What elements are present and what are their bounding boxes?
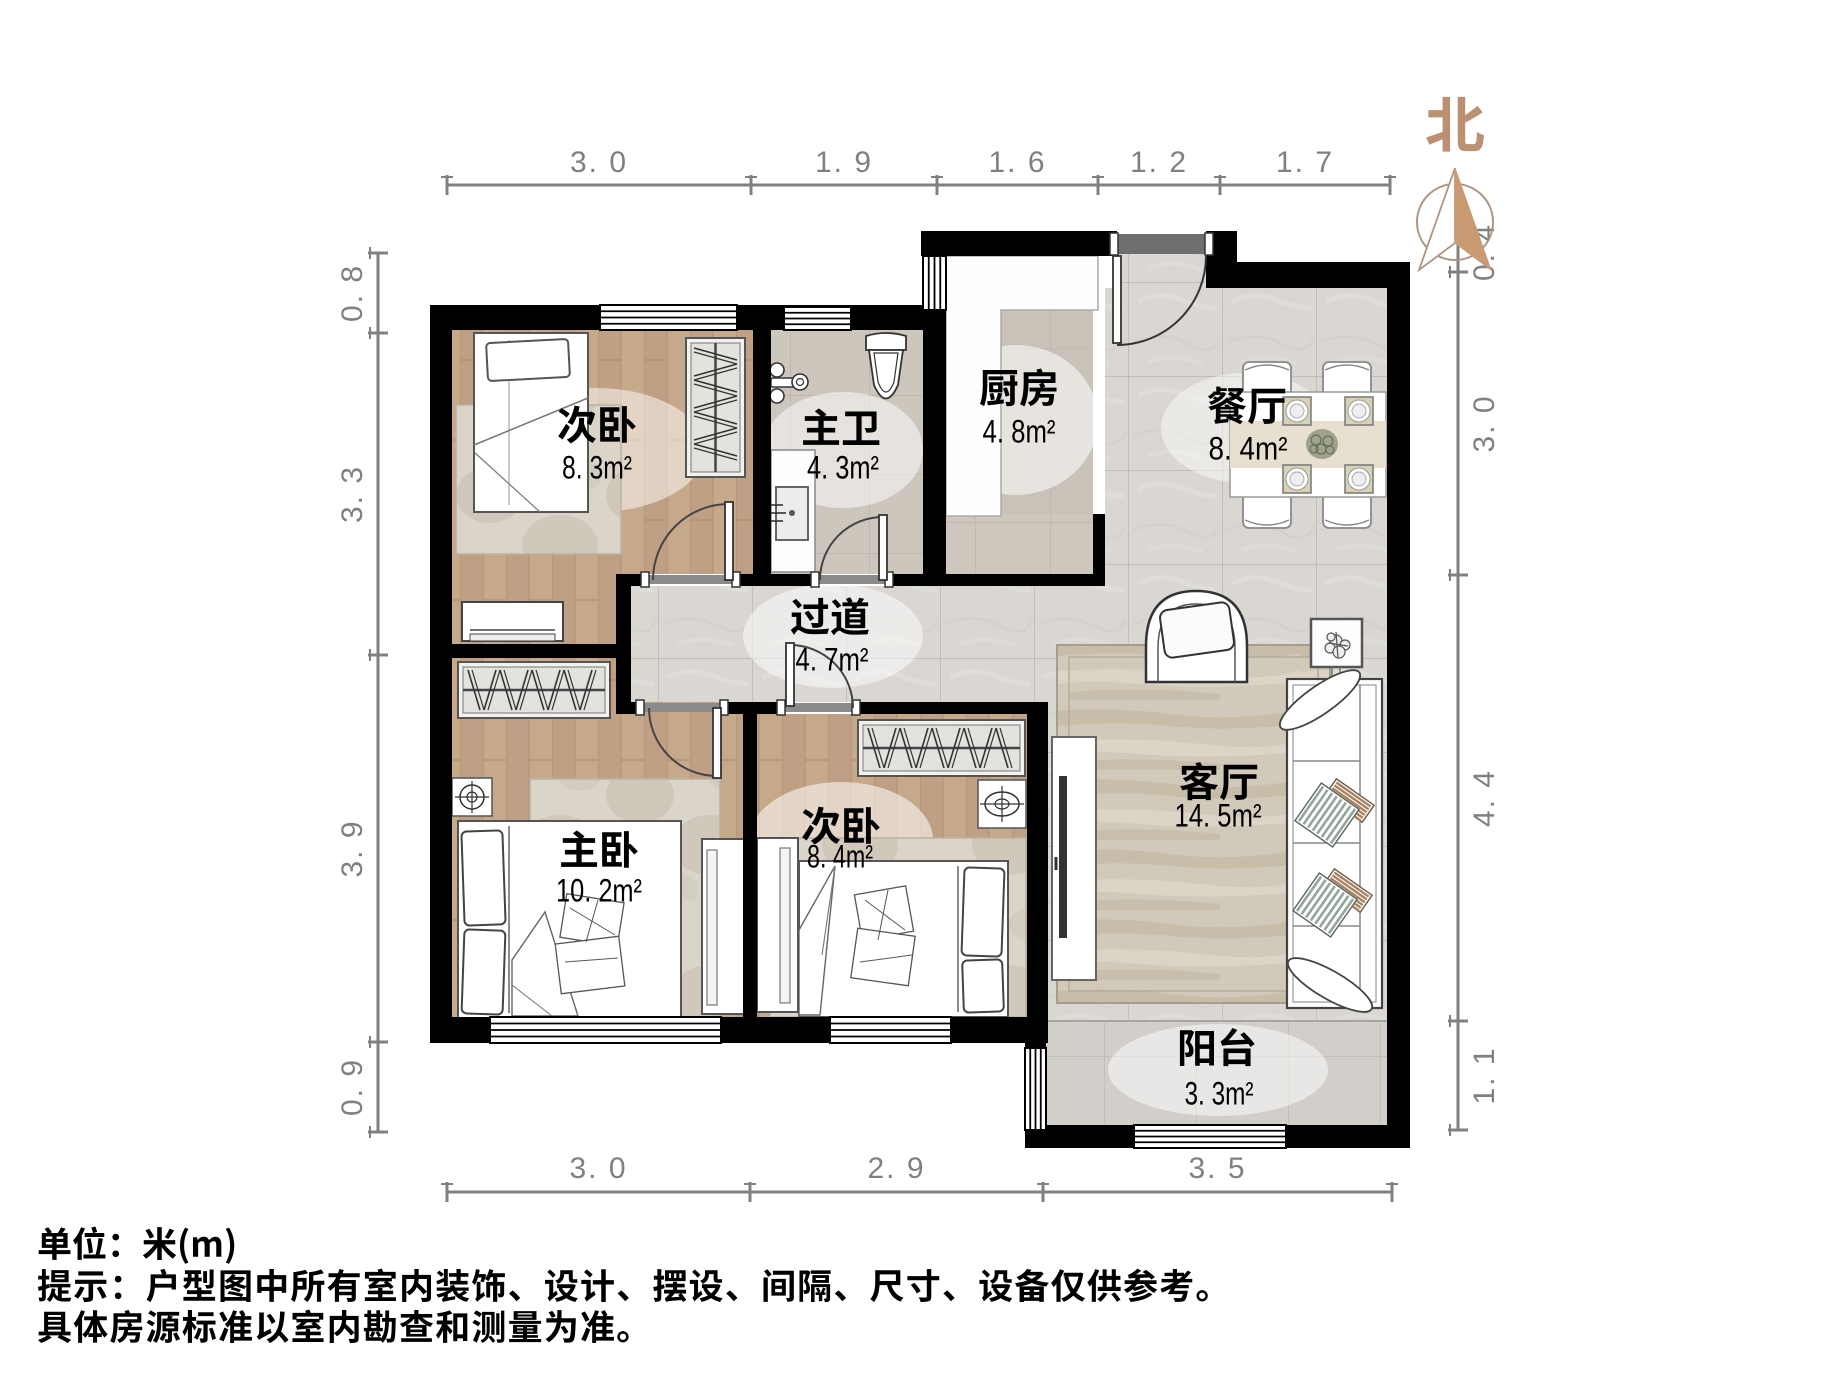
svg-text:4. 8m²: 4. 8m²	[983, 414, 1056, 450]
svg-text:3. 9: 3. 9	[336, 819, 369, 877]
svg-text:8. 4m²: 8. 4m²	[1209, 431, 1288, 467]
svg-text:10. 2m²: 10. 2m²	[556, 873, 642, 909]
svg-text:3. 0: 3. 0	[570, 146, 628, 179]
svg-text:4. 4: 4. 4	[1468, 769, 1501, 827]
svg-text:3. 0: 3. 0	[1468, 394, 1501, 452]
svg-text:1. 9: 1. 9	[815, 146, 873, 179]
svg-text:14. 5m²: 14. 5m²	[1175, 798, 1262, 834]
svg-text:3. 5: 3. 5	[1188, 1152, 1246, 1185]
svg-text:4. 7m²: 4. 7m²	[796, 642, 869, 678]
svg-text:3. 3: 3. 3	[336, 465, 369, 523]
svg-text:2. 9: 2. 9	[867, 1152, 925, 1185]
svg-text:3. 0: 3. 0	[569, 1152, 627, 1185]
svg-text:1. 6: 1. 6	[988, 146, 1046, 179]
svg-text:0. 8: 0. 8	[336, 264, 369, 322]
svg-text:4. 3m²: 4. 3m²	[807, 450, 879, 486]
svg-text:3. 3m²: 3. 3m²	[1185, 1076, 1254, 1112]
svg-text:0. 9: 0. 9	[336, 1058, 369, 1116]
svg-text:1. 7: 1. 7	[1276, 146, 1334, 179]
svg-text:8. 3m²: 8. 3m²	[562, 450, 632, 486]
svg-text:8. 4m²: 8. 4m²	[807, 839, 873, 875]
svg-text:1. 2: 1. 2	[1130, 146, 1188, 179]
svg-text:1. 1: 1. 1	[1468, 1046, 1501, 1104]
